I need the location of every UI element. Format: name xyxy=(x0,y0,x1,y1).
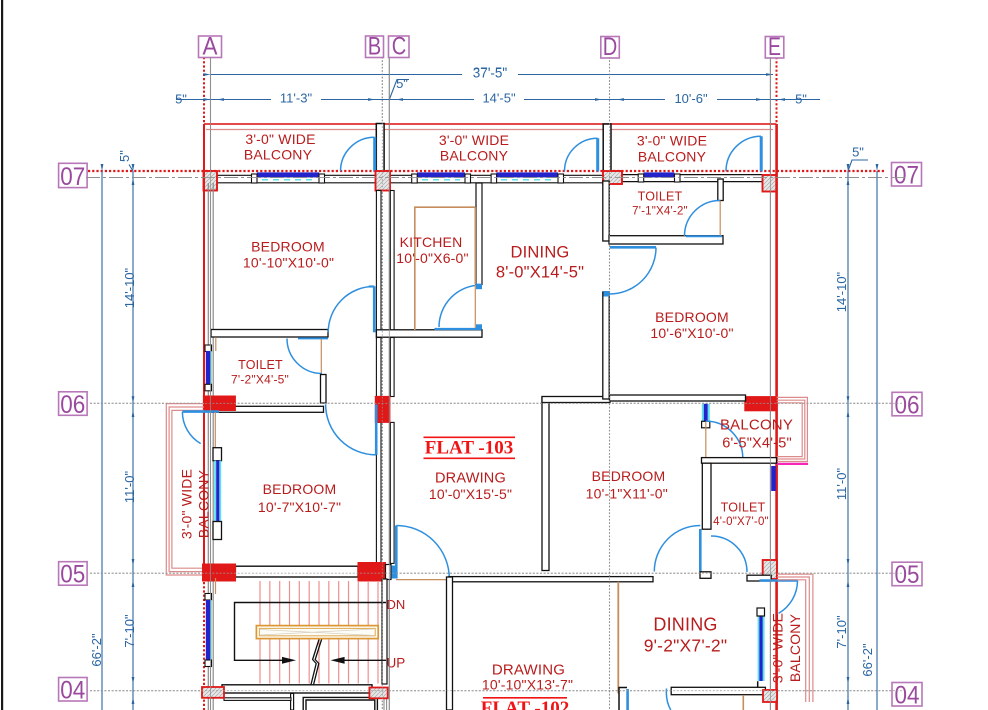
svg-text:BALCONY: BALCONY xyxy=(196,469,212,538)
svg-text:FLAT -103: FLAT -103 xyxy=(425,438,514,459)
svg-text:TOILET: TOILET xyxy=(638,190,683,204)
svg-text:37'-5": 37'-5" xyxy=(473,66,508,81)
svg-text:11'-0": 11'-0" xyxy=(834,468,849,501)
svg-text:05: 05 xyxy=(895,561,920,589)
svg-text:10'-0"X15'-5": 10'-0"X15'-5" xyxy=(429,486,512,502)
svg-text:5": 5" xyxy=(396,76,408,91)
svg-text:BEDROOM: BEDROOM xyxy=(263,481,337,497)
svg-text:05: 05 xyxy=(60,561,85,589)
svg-text:BEDROOM: BEDROOM xyxy=(251,239,325,255)
svg-text:E: E xyxy=(768,33,781,61)
svg-text:10'-7"X10'-7": 10'-7"X10'-7" xyxy=(258,499,341,515)
svg-text:TOILET: TOILET xyxy=(721,501,766,515)
svg-text:5": 5" xyxy=(117,150,132,162)
svg-text:5": 5" xyxy=(795,92,807,107)
svg-text:10'-10"X10'-0": 10'-10"X10'-0" xyxy=(243,254,334,270)
svg-text:04: 04 xyxy=(895,682,920,710)
svg-text:3'-0" WIDE: 3'-0" WIDE xyxy=(439,132,509,148)
svg-text:BEDROOM: BEDROOM xyxy=(592,468,666,484)
svg-text:A: A xyxy=(203,33,218,61)
svg-text:TOILET: TOILET xyxy=(238,358,283,372)
svg-text:BALCONY: BALCONY xyxy=(440,148,509,164)
svg-text:10'-1"X11'-0": 10'-1"X11'-0" xyxy=(586,486,668,502)
svg-text:07: 07 xyxy=(894,162,919,190)
svg-text:DINING: DINING xyxy=(511,244,570,262)
svg-text:11'-0": 11'-0" xyxy=(122,471,137,504)
svg-text:BALCONY: BALCONY xyxy=(244,147,313,163)
svg-text:7'-10": 7'-10" xyxy=(834,615,849,649)
svg-text:3'-0" WIDE: 3'-0" WIDE xyxy=(245,131,315,147)
svg-text:14'-5": 14'-5" xyxy=(482,91,516,106)
svg-text:BALCONY: BALCONY xyxy=(720,417,793,434)
svg-text:D: D xyxy=(603,33,618,61)
svg-text:5": 5" xyxy=(852,145,864,160)
svg-text:7'-2"X4'-5": 7'-2"X4'-5" xyxy=(231,373,289,387)
svg-text:10'-6"X10'-0": 10'-6"X10'-0" xyxy=(650,325,733,341)
svg-text:10'-0"X6-0": 10'-0"X6-0" xyxy=(396,250,468,266)
svg-text:9'-2"X7'-2": 9'-2"X7'-2" xyxy=(644,636,728,656)
svg-text:KITCHEN: KITCHEN xyxy=(400,234,463,250)
svg-text:DRAWING: DRAWING xyxy=(435,471,506,487)
svg-text:7'-10": 7'-10" xyxy=(122,614,137,648)
svg-text:3'-0" WIDE: 3'-0" WIDE xyxy=(770,613,786,683)
svg-text:3'-0" WIDE: 3'-0" WIDE xyxy=(637,133,707,149)
svg-text:10'-10"X13'-7": 10'-10"X13'-7" xyxy=(482,676,573,692)
svg-text:14'-10": 14'-10" xyxy=(122,267,137,308)
svg-text:07: 07 xyxy=(60,163,85,191)
svg-text:04: 04 xyxy=(60,677,85,705)
svg-text:B: B xyxy=(368,33,382,61)
svg-text:FLAT -102: FLAT -102 xyxy=(481,698,570,710)
svg-text:06: 06 xyxy=(60,391,85,419)
svg-text:4'-0"X7'-0": 4'-0"X7'-0" xyxy=(713,516,769,528)
svg-text:06: 06 xyxy=(895,391,920,419)
svg-text:BALCONY: BALCONY xyxy=(638,149,707,165)
svg-text:8'-0"X14'-5": 8'-0"X14'-5" xyxy=(496,263,584,281)
svg-text:C: C xyxy=(392,33,407,61)
svg-text:DINING: DINING xyxy=(653,615,717,635)
svg-text:5": 5" xyxy=(175,92,187,107)
svg-text:11'-3": 11'-3" xyxy=(280,91,313,106)
svg-text:BEDROOM: BEDROOM xyxy=(655,309,729,325)
svg-text:BALCONY: BALCONY xyxy=(787,613,803,682)
svg-text:6'-5"X4'-5": 6'-5"X4'-5" xyxy=(722,436,792,452)
svg-text:7'-1"X4'-2": 7'-1"X4'-2" xyxy=(632,206,688,218)
svg-text:14'-10": 14'-10" xyxy=(834,271,849,312)
svg-text:66'-2": 66'-2" xyxy=(860,643,875,677)
svg-text:66'-2": 66'-2" xyxy=(89,633,104,667)
svg-text:3'-0" WIDE: 3'-0" WIDE xyxy=(179,469,195,539)
svg-text:10'-6": 10'-6" xyxy=(674,91,708,106)
